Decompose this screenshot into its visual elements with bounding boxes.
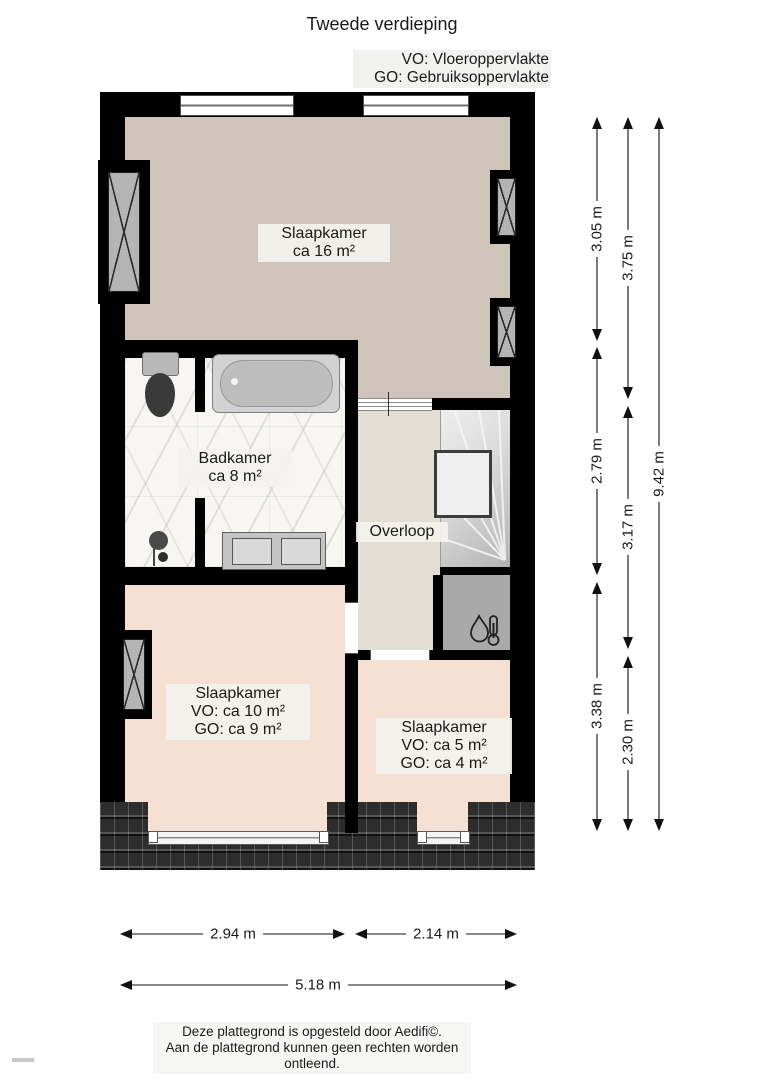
room-label-bedroom-left: Slaapkamer VO: ca 10 m² GO: ca 9 m² bbox=[166, 684, 310, 740]
boiler-closet bbox=[443, 575, 510, 650]
room-go: GO: ca 4 m² bbox=[380, 755, 508, 773]
room-name: Slaapkamer bbox=[262, 225, 386, 243]
room-label-bedroom-large: Slaapkamer ca 16 m² bbox=[258, 224, 390, 262]
door-bedroom-large bbox=[358, 398, 432, 411]
shower-knob bbox=[158, 552, 168, 562]
legend-line-vo: VO: Vloeroppervlakte bbox=[355, 51, 549, 69]
room-label-landing: Overloop bbox=[356, 522, 448, 542]
wardrobe-icon bbox=[116, 630, 152, 719]
wardrobe-icon bbox=[490, 170, 523, 244]
dim-3-05: 3.05 m bbox=[589, 201, 606, 257]
room-area: ca 16 m² bbox=[262, 243, 386, 261]
dim-5-18: 5.18 m bbox=[288, 977, 348, 994]
room-go: GO: ca 9 m² bbox=[170, 721, 306, 739]
wall-toilet-stub bbox=[195, 358, 205, 412]
sink-icon bbox=[222, 532, 326, 570]
room-label-bathroom: Badkamer ca 8 m² bbox=[178, 449, 292, 487]
dim-2-30: 2.30 m bbox=[620, 714, 637, 770]
footer-line1: Deze plattegrond is opgesteld door Aedif… bbox=[153, 1024, 471, 1040]
dim-3-17: 3.17 m bbox=[620, 499, 637, 555]
dim-2-79: 2.79 m bbox=[589, 433, 606, 489]
wall-top bbox=[100, 92, 535, 117]
footer-line2: Aan de plattegrond kunnen geen rechten w… bbox=[153, 1040, 471, 1072]
page-title: Tweede verdieping bbox=[0, 14, 764, 35]
bedroom-right-window bbox=[417, 831, 470, 845]
room-name: Overloop bbox=[360, 523, 444, 541]
legend: VO: Vloeroppervlakte GO: Gebruiksoppervl… bbox=[353, 50, 551, 88]
wardrobe-panel bbox=[497, 178, 516, 236]
wall-closet-left bbox=[433, 575, 443, 650]
room-vo: VO: ca 10 m² bbox=[170, 703, 306, 721]
window-end bbox=[460, 831, 470, 843]
window-end bbox=[148, 831, 158, 843]
legend-line-go: GO: Gebruiksoppervlakte bbox=[355, 69, 549, 87]
room-vo: VO: ca 5 m² bbox=[380, 737, 508, 755]
wardrobe-panel bbox=[123, 639, 145, 710]
dim-3-38: 3.38 m bbox=[589, 678, 606, 734]
door-bedroom-left bbox=[345, 602, 358, 654]
wall-shower-stub bbox=[195, 498, 205, 570]
boiler-icon bbox=[465, 611, 503, 649]
dim-3-75: 3.75 m bbox=[620, 230, 637, 286]
wall-bathroom-right bbox=[345, 340, 358, 585]
door-tick bbox=[388, 392, 389, 416]
bathtub-drain bbox=[231, 378, 238, 385]
shower-icon bbox=[149, 531, 168, 550]
room-area: ca 8 m² bbox=[182, 468, 288, 486]
sink-basin bbox=[281, 538, 321, 565]
room-label-bedroom-right: Slaapkamer VO: ca 5 m² GO: ca 4 m² bbox=[376, 718, 512, 774]
wardrobe-icon bbox=[490, 298, 523, 366]
wall-stairs-top bbox=[432, 398, 514, 410]
footer-disclaimer: Deze plattegrond is opgesteld door Aedif… bbox=[153, 1022, 471, 1074]
wall-stairs-closet bbox=[440, 567, 510, 575]
wardrobe-panel bbox=[108, 172, 140, 292]
wardrobe-panel bbox=[497, 306, 516, 358]
room-name: Badkamer bbox=[182, 450, 288, 468]
bedroom-right-floor-extension bbox=[417, 802, 468, 833]
dim-9-42: 9.42 m bbox=[651, 446, 668, 502]
shower-hose bbox=[153, 548, 155, 566]
bedroom-left-floor-extension bbox=[148, 802, 327, 833]
wardrobe-icon bbox=[98, 160, 150, 304]
dim-2-94: 2.94 m bbox=[203, 926, 263, 943]
stairwell-void bbox=[434, 450, 492, 518]
dim-2-14: 2.14 m bbox=[406, 926, 466, 943]
room-name: Slaapkamer bbox=[380, 719, 508, 737]
sink-basin bbox=[232, 538, 272, 565]
bedroom-left-window bbox=[148, 831, 329, 845]
copyright-mark bbox=[12, 1058, 34, 1062]
window-end bbox=[417, 831, 427, 843]
bedroom-large-window-2 bbox=[363, 95, 469, 116]
door-bedroom-right bbox=[370, 650, 430, 660]
room-name: Slaapkamer bbox=[170, 685, 306, 703]
window-end bbox=[319, 831, 329, 843]
bedroom-large-window-1 bbox=[180, 95, 294, 116]
